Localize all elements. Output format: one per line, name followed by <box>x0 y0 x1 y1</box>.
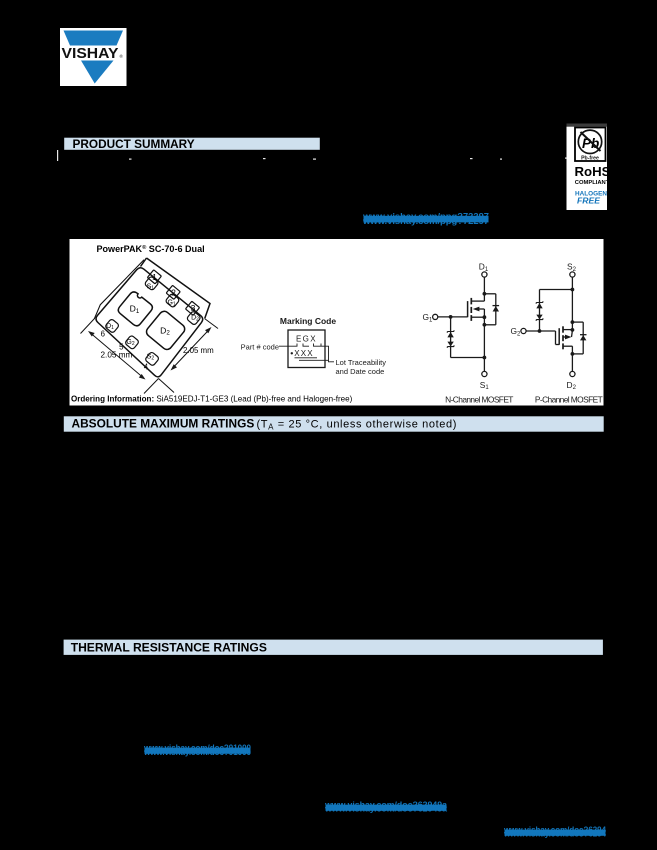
svg-text:VISHAY: VISHAY <box>62 46 119 62</box>
svg-text:3: 3 <box>191 303 196 313</box>
svg-text:THERMAL RESISTANCE RATINGS: THERMAL RESISTANCE RATINGS <box>71 640 267 654</box>
svg-text:D2: D2 <box>191 315 199 323</box>
svg-text:XXX: XXX <box>294 349 314 358</box>
svg-text:Pb-free: Pb-free <box>581 156 599 162</box>
svg-text:Ordering Information: SiA519ED: Ordering Information: SiA519EDJ-T1-GE3 (… <box>71 395 353 404</box>
svg-text:D1: D1 <box>106 323 114 331</box>
svg-text:and Date code: and Date code <box>336 367 385 376</box>
svg-text:Lot Traceability: Lot Traceability <box>336 358 387 367</box>
svg-text:1: 1 <box>152 272 157 282</box>
svg-text:N-Channel MOSFET: N-Channel MOSFET <box>445 394 513 404</box>
svg-text:S2: S2 <box>147 353 155 361</box>
svg-text:S1: S1 <box>147 283 155 291</box>
svg-text:COMPLIANT°: COMPLIANT° <box>575 180 612 186</box>
svg-text:www.vishay.com/doc?91000: www.vishay.com/doc?91000 <box>143 748 251 757</box>
svg-text:2: 2 <box>171 288 176 298</box>
svg-text:PRODUCT SUMMARY: PRODUCT SUMMARY <box>73 137 195 151</box>
svg-text:G1: G1 <box>167 300 175 308</box>
svg-text:4: 4 <box>144 363 149 372</box>
svg-text:FREE: FREE <box>577 196 600 206</box>
svg-text:Part # code: Part # code <box>241 342 279 351</box>
svg-text:P-Channel MOSFET: P-Channel MOSFET <box>535 394 603 404</box>
svg-text:2.05 mm: 2.05 mm <box>101 350 133 359</box>
svg-text:G2: G2 <box>126 339 134 347</box>
svg-text:ABSOLUTE MAXIMUM RATINGS: ABSOLUTE MAXIMUM RATINGS <box>72 417 255 431</box>
svg-text:2.05 mm: 2.05 mm <box>183 346 214 355</box>
svg-text:www.vishay.com/doc?6294: www.vishay.com/doc?6294 <box>503 830 606 839</box>
svg-text:www.vishay.com/ppg?72297: www.vishay.com/ppg?72297 <box>362 216 489 226</box>
svg-text:www.vishay.com/doc?62949a: www.vishay.com/doc?62949a <box>324 805 448 814</box>
svg-text:6: 6 <box>101 329 105 338</box>
svg-text:Marking Code: Marking Code <box>280 316 336 326</box>
svg-text:(TA = 25 °C, unless otherwise: (TA = 25 °C, unless otherwise noted) <box>257 419 458 432</box>
svg-text:EGX: EGX <box>296 335 317 344</box>
svg-text:Pb: Pb <box>582 136 599 151</box>
svg-text:PowerPAK® SC-70-6 Dual: PowerPAK® SC-70-6 Dual <box>97 244 205 254</box>
